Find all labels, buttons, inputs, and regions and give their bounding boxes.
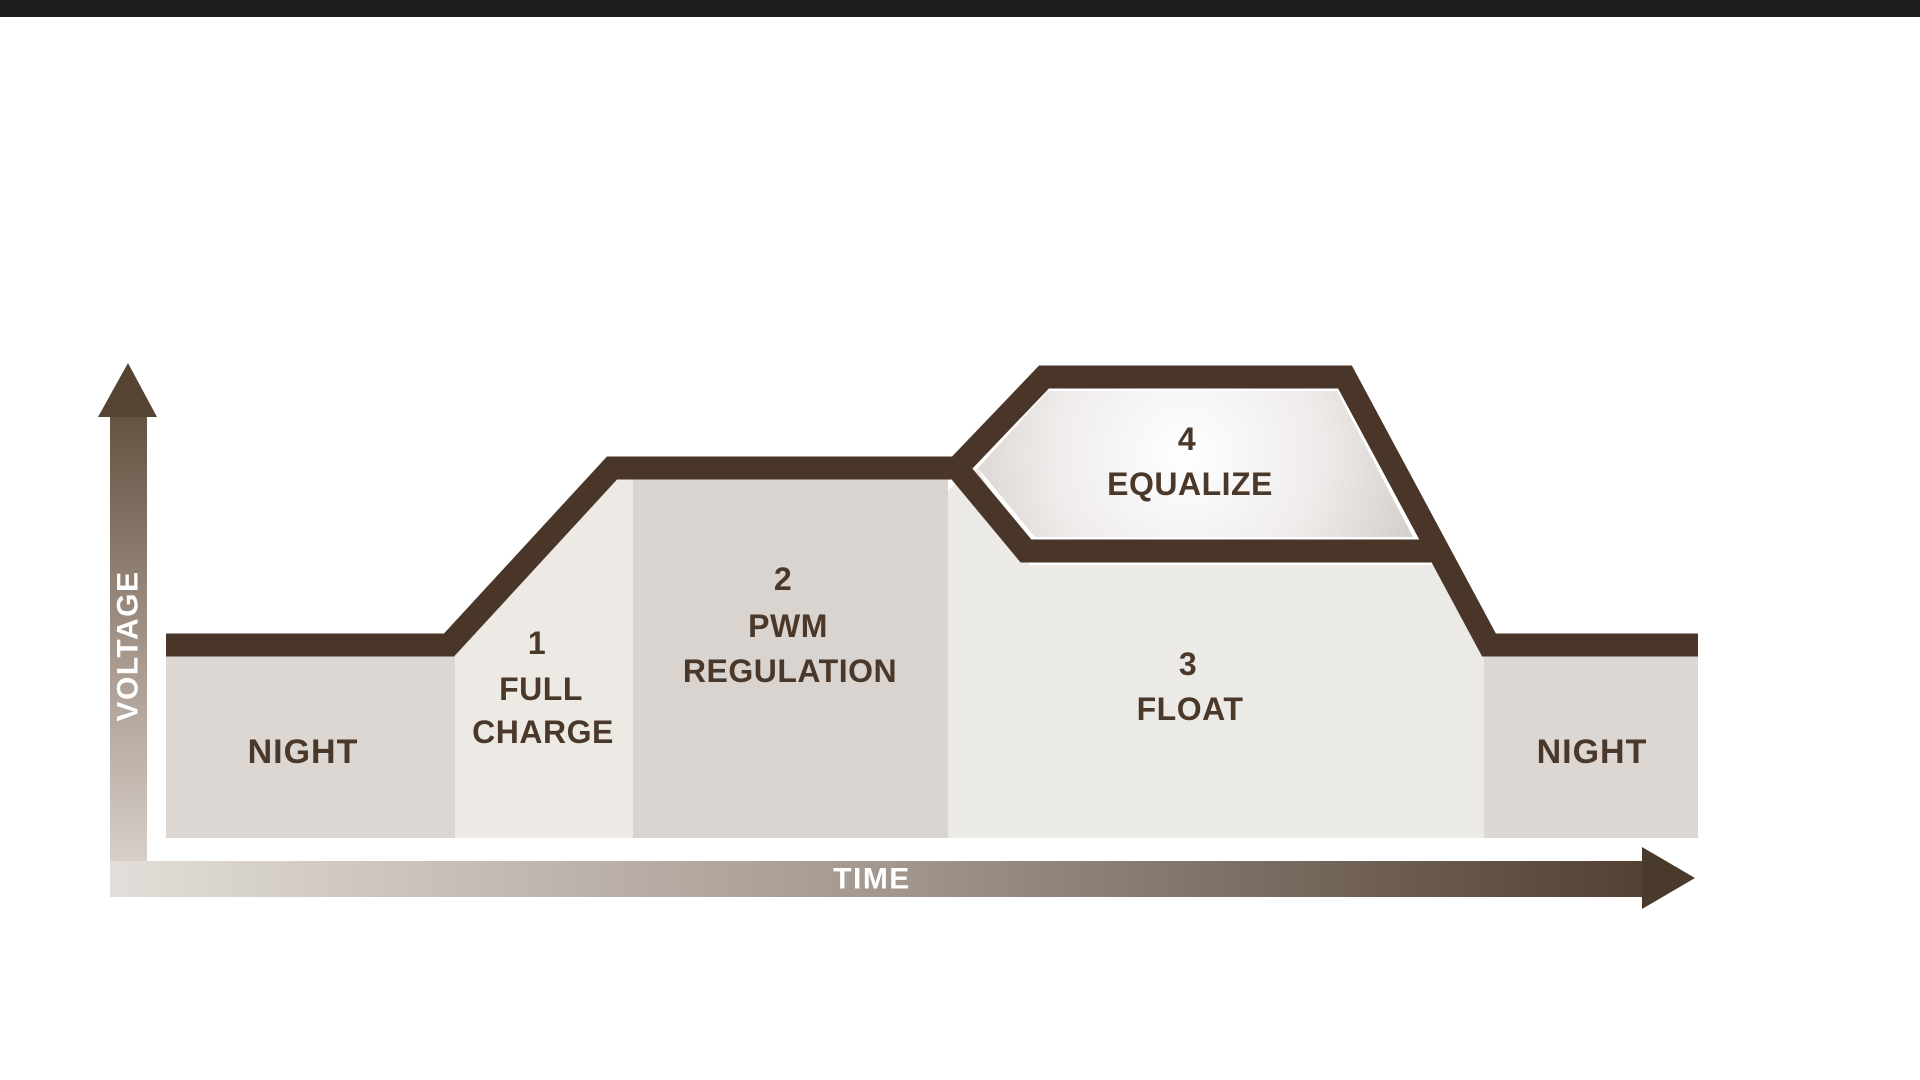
equalize-panel <box>978 391 1413 537</box>
stage1-number: 1 <box>528 625 546 661</box>
night-right-label: NIGHT <box>1537 733 1648 771</box>
stage3-label-line1: FLOAT <box>1137 691 1244 727</box>
stage2-label-line2: REGULATION <box>683 653 897 689</box>
stage1-label-line1: FULL <box>499 671 583 707</box>
stage3-number: 3 <box>1179 646 1197 682</box>
time-axis-label: TIME <box>833 863 911 896</box>
night-left-label: NIGHT <box>248 733 359 771</box>
voltage-axis-label: VOLTAGE <box>112 570 145 721</box>
stage4-label-line1: EQUALIZE <box>1107 466 1273 502</box>
charging-stages-diagram: NIGHT 1 FULL CHARGE 2 PWM REGULATION 4 E… <box>0 0 1920 1080</box>
stage2-label-line1: PWM <box>748 608 828 644</box>
stage4-number: 4 <box>1178 421 1196 457</box>
voltage-time-chart: NIGHT 1 FULL CHARGE 2 PWM REGULATION 4 E… <box>0 0 1920 1080</box>
stage1-label-line2: CHARGE <box>472 714 614 750</box>
stage2-number: 2 <box>774 561 792 597</box>
